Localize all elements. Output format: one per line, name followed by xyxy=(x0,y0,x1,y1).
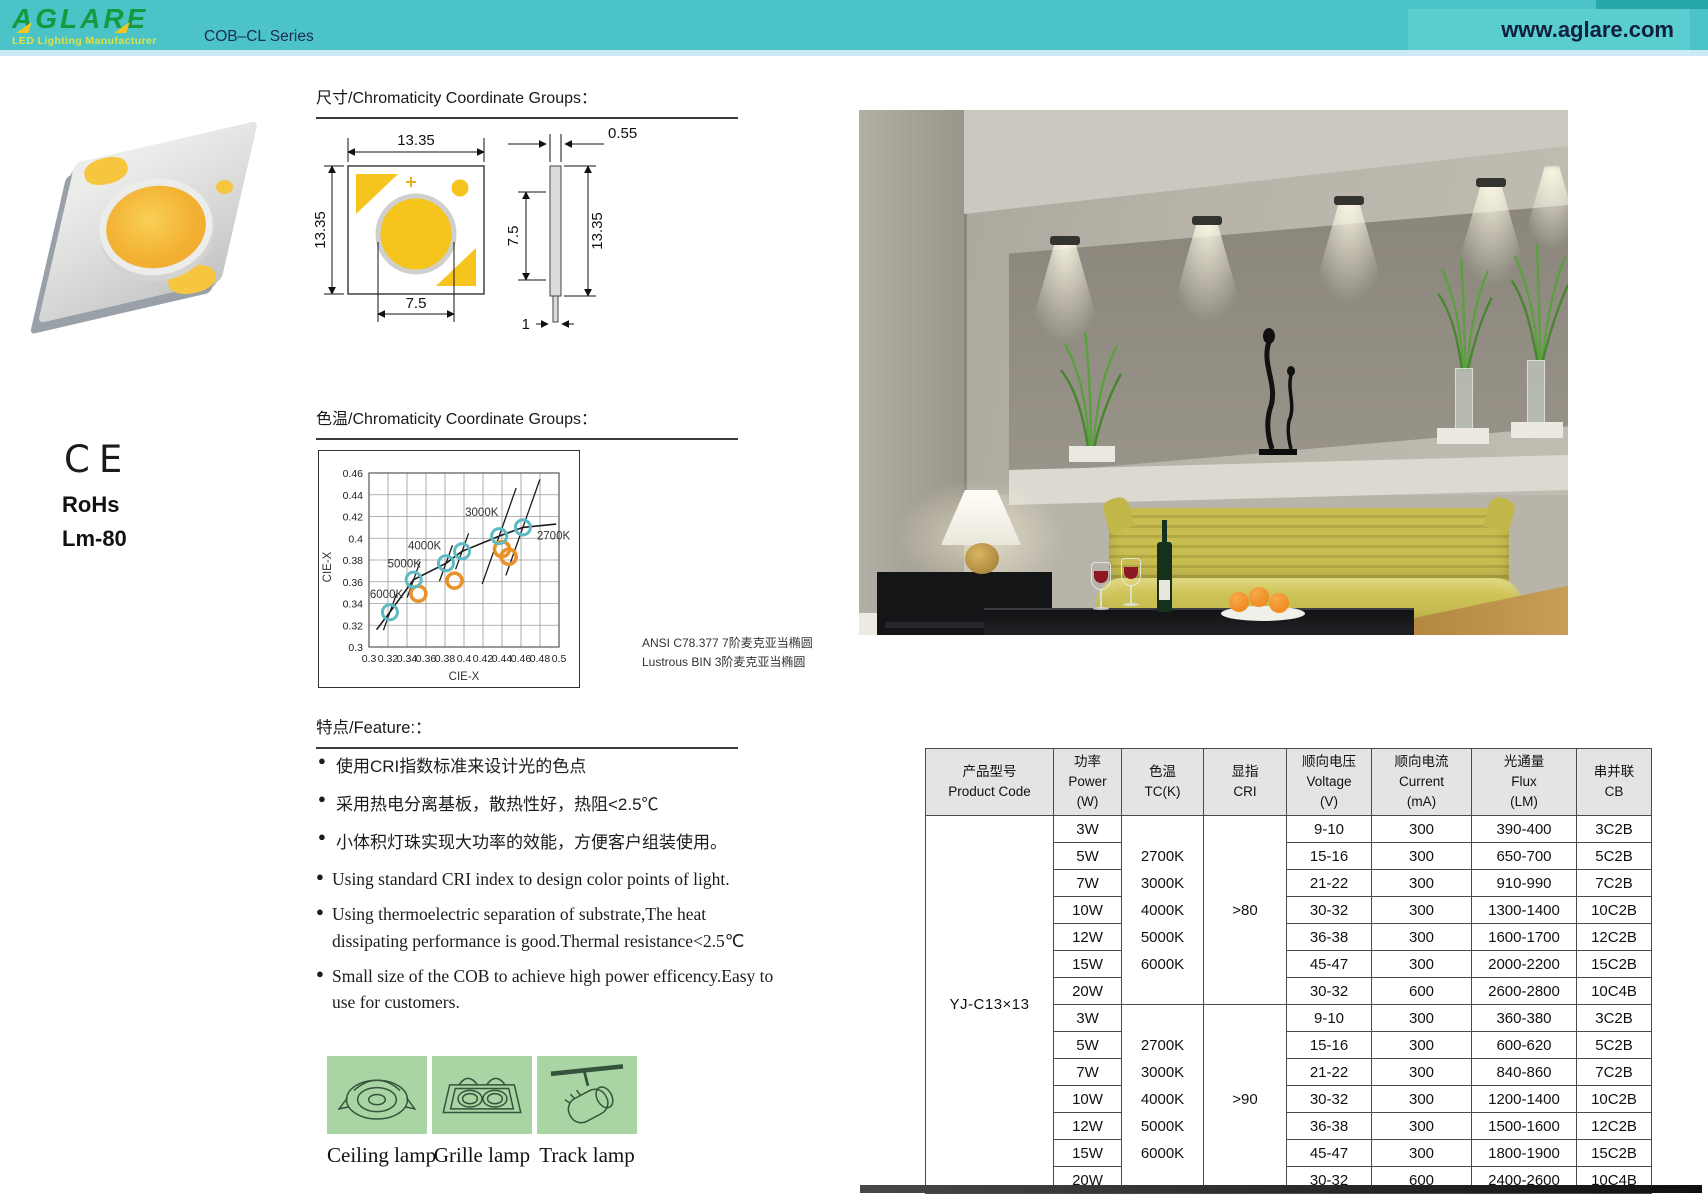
emitter-circle xyxy=(378,196,454,272)
planter xyxy=(1437,428,1489,444)
table-cell: 20W xyxy=(1054,978,1122,1005)
table-cell: >80 xyxy=(1204,816,1287,1005)
dim-bottom: 1 xyxy=(522,316,530,333)
svg-text:0.42: 0.42 xyxy=(343,512,364,524)
features-cn: ●使用CRI指数标准来设计光的色点 ●采用热电分离基板，散热性好，热阻<2.5℃… xyxy=(318,752,748,866)
table-cell: 2700K 3000K 4000K 5000K 6000K xyxy=(1122,816,1204,1005)
dim-inner: 7.5 xyxy=(505,226,522,247)
track-lamp-icon xyxy=(537,1056,637,1134)
table-cell: >90 xyxy=(1204,1005,1287,1194)
svg-text:0.44: 0.44 xyxy=(492,653,513,665)
top-bar-corner-accent xyxy=(1596,0,1708,9)
dim-circle: 7.5 xyxy=(406,295,427,312)
chart-title: 色温/Chromaticity Coordinate Groups： xyxy=(316,405,738,440)
coffee-table xyxy=(984,608,1414,635)
table-cell: 5C2B xyxy=(1577,843,1652,870)
application-label: Ceiling lamp xyxy=(327,1143,427,1168)
table-cell: 300 xyxy=(1372,1005,1472,1032)
planter xyxy=(1069,446,1115,462)
table-cell: 910-990 xyxy=(1472,870,1577,897)
chart-note-lustrous: Lustrous BIN 3阶麦克亚当椭圆 xyxy=(642,653,832,672)
feature-text: Small size of the COB to achieve high po… xyxy=(332,966,773,1012)
feature-item: ●Using standard CRI index to design colo… xyxy=(316,866,774,892)
table-cell: YJ-C13×13 xyxy=(926,816,1054,1194)
dim-width: 13.35 xyxy=(397,132,435,149)
svg-text:0.36: 0.36 xyxy=(343,577,364,589)
brand-tagline: LED Lighting Manufacturer xyxy=(12,36,157,47)
table-cell: 30-32 xyxy=(1287,978,1372,1005)
column-header: 功率Power(W) xyxy=(1054,749,1122,816)
column-header: 串并联CB xyxy=(1577,749,1652,816)
svg-text:5000K: 5000K xyxy=(388,559,422,571)
svg-text:0.46: 0.46 xyxy=(511,653,532,665)
website-box: www.aglare.com xyxy=(1408,9,1690,50)
cie-chart-frame: 0.30.320.340.360.380.40.420.440.460.480.… xyxy=(318,450,580,688)
svg-text:6000K: 6000K xyxy=(370,589,404,601)
svg-text:3000K: 3000K xyxy=(465,507,499,519)
plant xyxy=(1429,250,1499,372)
table-cell: 2000-2200 xyxy=(1472,951,1577,978)
table-cell: 5W xyxy=(1054,843,1122,870)
bullet-icon: ● xyxy=(316,867,324,887)
column-header: 顺向电压Voltage(V) xyxy=(1287,749,1372,816)
feature-text: 小体积灯珠实现大功率的效能，方便客户组装使用。 xyxy=(336,833,727,852)
table-cell: 45-47 xyxy=(1287,1140,1372,1167)
downlight-fixture xyxy=(1050,236,1080,245)
table-cell: 9-10 xyxy=(1287,816,1372,843)
table-cell: 2700K 3000K 4000K 5000K 6000K xyxy=(1122,1005,1204,1194)
svg-text:0.42: 0.42 xyxy=(473,653,494,665)
table-cell: 10C2B xyxy=(1577,1086,1652,1113)
bullet-icon: ● xyxy=(318,791,326,806)
product-photo xyxy=(40,140,270,330)
application-grille-lamp: Grille lamp xyxy=(432,1056,532,1168)
table-cell: 3C2B xyxy=(1577,816,1652,843)
column-header: 显指CRI xyxy=(1204,749,1287,816)
table-cell: 300 xyxy=(1372,870,1472,897)
dim-side-height: 13.35 xyxy=(589,212,606,250)
application-track-lamp: Track lamp xyxy=(537,1056,637,1168)
table-cell: 300 xyxy=(1372,1140,1472,1167)
rohs-label: RoHs xyxy=(62,492,119,518)
figurine-sculpture xyxy=(1239,325,1309,455)
polarity-dot xyxy=(452,180,469,197)
table-cell: 10W xyxy=(1054,897,1122,924)
feature-item: ●Small size of the COB to achieve high p… xyxy=(316,963,774,1016)
table-cell: 840-860 xyxy=(1472,1059,1577,1086)
svg-text:2700K: 2700K xyxy=(537,530,571,542)
column-header: 光通量Flux(LM) xyxy=(1472,749,1577,816)
table-cell: 1500-1600 xyxy=(1472,1113,1577,1140)
table-lamp-base xyxy=(965,543,999,574)
table-cell: 30-32 xyxy=(1287,897,1372,924)
feature-text: 使用CRI指数标准来设计光的色点 xyxy=(336,757,586,776)
table-cell: 300 xyxy=(1372,1113,1472,1140)
table-cell: 3W xyxy=(1054,816,1122,843)
glass-vase xyxy=(1527,360,1545,424)
room-photo xyxy=(859,110,1568,635)
svg-text:CIE-X: CIE-X xyxy=(449,671,480,683)
cie-chart: 0.30.320.340.360.380.40.420.440.460.480.… xyxy=(319,451,577,684)
plant xyxy=(1055,322,1125,450)
ceiling-lamp-icon xyxy=(327,1056,427,1134)
table-cell: 2600-2800 xyxy=(1472,978,1577,1005)
table-cell: 3W xyxy=(1054,1005,1122,1032)
svg-text:CIE-X: CIE-X xyxy=(322,551,334,582)
table-cell: 36-38 xyxy=(1287,924,1372,951)
svg-text:0.5: 0.5 xyxy=(552,653,567,665)
brand-name: AGLARE xyxy=(12,5,157,33)
table-cell: 1600-1700 xyxy=(1472,924,1577,951)
table-cell: 21-22 xyxy=(1287,870,1372,897)
table-cell: 15-16 xyxy=(1287,843,1372,870)
application-label: Grille lamp xyxy=(432,1143,532,1168)
feature-item: ●小体积灯珠实现大功率的效能，方便客户组装使用。 xyxy=(318,828,748,853)
table-header-row: 产品型号Product Code功率Power(W)色温TC(K)显指CRI顺向… xyxy=(926,749,1652,816)
svg-text:0.36: 0.36 xyxy=(416,653,437,665)
features-en: ●Using standard CRI index to design colo… xyxy=(316,866,774,1024)
side-profile xyxy=(550,166,561,296)
column-header: 产品型号Product Code xyxy=(926,749,1054,816)
column-header: 色温TC(K) xyxy=(1122,749,1204,816)
table-cell: 300 xyxy=(1372,816,1472,843)
svg-text:0.32: 0.32 xyxy=(378,653,399,665)
downlight-fixture xyxy=(1192,216,1222,225)
feature-item: ●使用CRI指数标准来设计光的色点 xyxy=(318,752,748,777)
table-cell: 15W xyxy=(1054,1140,1122,1167)
svg-text:0.38: 0.38 xyxy=(435,653,456,665)
spec-table-wrap: 产品型号Product Code功率Power(W)色温TC(K)显指CRI顺向… xyxy=(925,748,1652,1194)
svg-text:4000K: 4000K xyxy=(408,540,442,552)
datasheet-page: AGLARE LED Lighting Manufacturer COB–CL … xyxy=(0,0,1708,1195)
table-cell: 1800-1900 xyxy=(1472,1140,1577,1167)
table-cell: 300 xyxy=(1372,1086,1472,1113)
table-cell: 15-16 xyxy=(1287,1032,1372,1059)
table-cell: 300 xyxy=(1372,1059,1472,1086)
table-cell: 5W xyxy=(1054,1032,1122,1059)
plant xyxy=(1504,238,1568,362)
svg-text:0.4: 0.4 xyxy=(457,653,472,665)
bullet-icon: ● xyxy=(318,829,326,844)
downlight-fixture xyxy=(1476,178,1506,187)
feature-text: 采用热电分离基板，散热性好，热阻<2.5℃ xyxy=(336,795,659,814)
table-cell: 600-620 xyxy=(1472,1032,1577,1059)
table-cell: 390-400 xyxy=(1472,816,1577,843)
feature-item: ●采用热电分离基板，散热性好，热阻<2.5℃ xyxy=(318,790,748,815)
table-cell: 12W xyxy=(1054,924,1122,951)
svg-text:0.48: 0.48 xyxy=(530,653,551,665)
chart-note-ansi: ANSI C78.377 7阶麦克亚当椭圆 xyxy=(642,634,832,653)
table-cell: 15W xyxy=(1054,951,1122,978)
application-label: Track lamp xyxy=(537,1143,637,1168)
table-cell: 7C2B xyxy=(1577,870,1652,897)
table-cell: 7C2B xyxy=(1577,1059,1652,1086)
table-cell: 12C2B xyxy=(1577,1113,1652,1140)
planter xyxy=(1511,422,1563,438)
dim-thickness: 0.55 xyxy=(608,125,637,142)
grille-lamp-icon xyxy=(432,1056,532,1134)
wine-glass xyxy=(1091,562,1111,614)
svg-text:0.34: 0.34 xyxy=(343,599,364,611)
table-cell: 600 xyxy=(1372,978,1472,1005)
table-cell: 10C4B xyxy=(1577,978,1652,1005)
feature-text: Using standard CRI index to design color… xyxy=(332,869,730,889)
column-header: 顺向电流Current(mA) xyxy=(1372,749,1472,816)
table-cell: 12W xyxy=(1054,1113,1122,1140)
svg-text:0.34: 0.34 xyxy=(397,653,418,665)
table-cell: 15C2B xyxy=(1577,951,1652,978)
ce-mark: CE xyxy=(64,438,131,481)
table-cell: 3C2B xyxy=(1577,1005,1652,1032)
orange-fruit xyxy=(1229,592,1249,612)
orange-fruit xyxy=(1269,593,1289,613)
header-divider xyxy=(0,50,1708,56)
feature-text: Using thermoelectric separation of subst… xyxy=(332,904,744,950)
features-title: 特点/Feature:： xyxy=(316,714,738,749)
table-cell: 7W xyxy=(1054,870,1122,897)
svg-text:0.3: 0.3 xyxy=(348,642,363,654)
top-bar: AGLARE LED Lighting Manufacturer COB–CL … xyxy=(0,0,1708,50)
wine-glass xyxy=(1121,558,1141,610)
svg-text:0.4: 0.4 xyxy=(348,533,363,545)
table-row: YJ-C13×133W2700K 3000K 4000K 5000K 6000K… xyxy=(926,816,1652,843)
dimension-drawing: 13.35 13.35 7.5 0.55 7.5 13.35 1 xyxy=(312,112,652,347)
feature-item: ●Using thermoelectric separation of subs… xyxy=(316,901,774,954)
table-cell: 36-38 xyxy=(1287,1113,1372,1140)
orange-fruit xyxy=(1249,587,1269,607)
bullet-icon: ● xyxy=(316,964,324,984)
svg-text:0.32: 0.32 xyxy=(343,620,364,632)
table-cell: 10W xyxy=(1054,1086,1122,1113)
bullet-icon: ● xyxy=(316,902,324,922)
table-cell: 21-22 xyxy=(1287,1059,1372,1086)
table-cell: 10C2B xyxy=(1577,897,1652,924)
downlight-fixture xyxy=(1334,196,1364,205)
chip-solder-dot xyxy=(216,180,233,194)
dim-height: 13.35 xyxy=(312,211,329,249)
lm80-label: Lm-80 xyxy=(62,526,127,552)
svg-text:0.44: 0.44 xyxy=(343,490,364,502)
aglare-logo: AGLARE LED Lighting Manufacturer xyxy=(12,5,157,47)
svg-text:0.46: 0.46 xyxy=(343,468,364,480)
applications: Ceiling lamp Grille lamp xyxy=(327,1056,637,1168)
table-cell: 360-380 xyxy=(1472,1005,1577,1032)
spec-table: 产品型号Product Code功率Power(W)色温TC(K)显指CRI顺向… xyxy=(925,748,1652,1194)
bullet-icon: ● xyxy=(318,753,326,768)
table-cell: 30-32 xyxy=(1287,1086,1372,1113)
glass-vase xyxy=(1455,368,1473,430)
table-cell: 12C2B xyxy=(1577,924,1652,951)
side-profile-tip xyxy=(553,296,558,322)
table-cell: 650-700 xyxy=(1472,843,1577,870)
footer-bar xyxy=(860,1185,1702,1193)
table-cell: 9-10 xyxy=(1287,1005,1372,1032)
wine-bottle xyxy=(1157,542,1172,612)
website-url: www.aglare.com xyxy=(1501,17,1674,43)
table-cell: 300 xyxy=(1372,951,1472,978)
application-ceiling-lamp: Ceiling lamp xyxy=(327,1056,427,1168)
table-cell: 5C2B xyxy=(1577,1032,1652,1059)
table-cell: 45-47 xyxy=(1287,951,1372,978)
svg-text:0.38: 0.38 xyxy=(343,555,364,567)
series-title: COB–CL Series xyxy=(204,28,314,46)
table-cell: 1200-1400 xyxy=(1472,1086,1577,1113)
table-cell: 300 xyxy=(1372,897,1472,924)
table-cell: 300 xyxy=(1372,1032,1472,1059)
table-cell: 15C2B xyxy=(1577,1140,1652,1167)
svg-text:0.3: 0.3 xyxy=(362,653,377,665)
table-cell: 1300-1400 xyxy=(1472,897,1577,924)
table-cell: 300 xyxy=(1372,843,1472,870)
table-cell: 300 xyxy=(1372,924,1472,951)
table-cell: 7W xyxy=(1054,1059,1122,1086)
